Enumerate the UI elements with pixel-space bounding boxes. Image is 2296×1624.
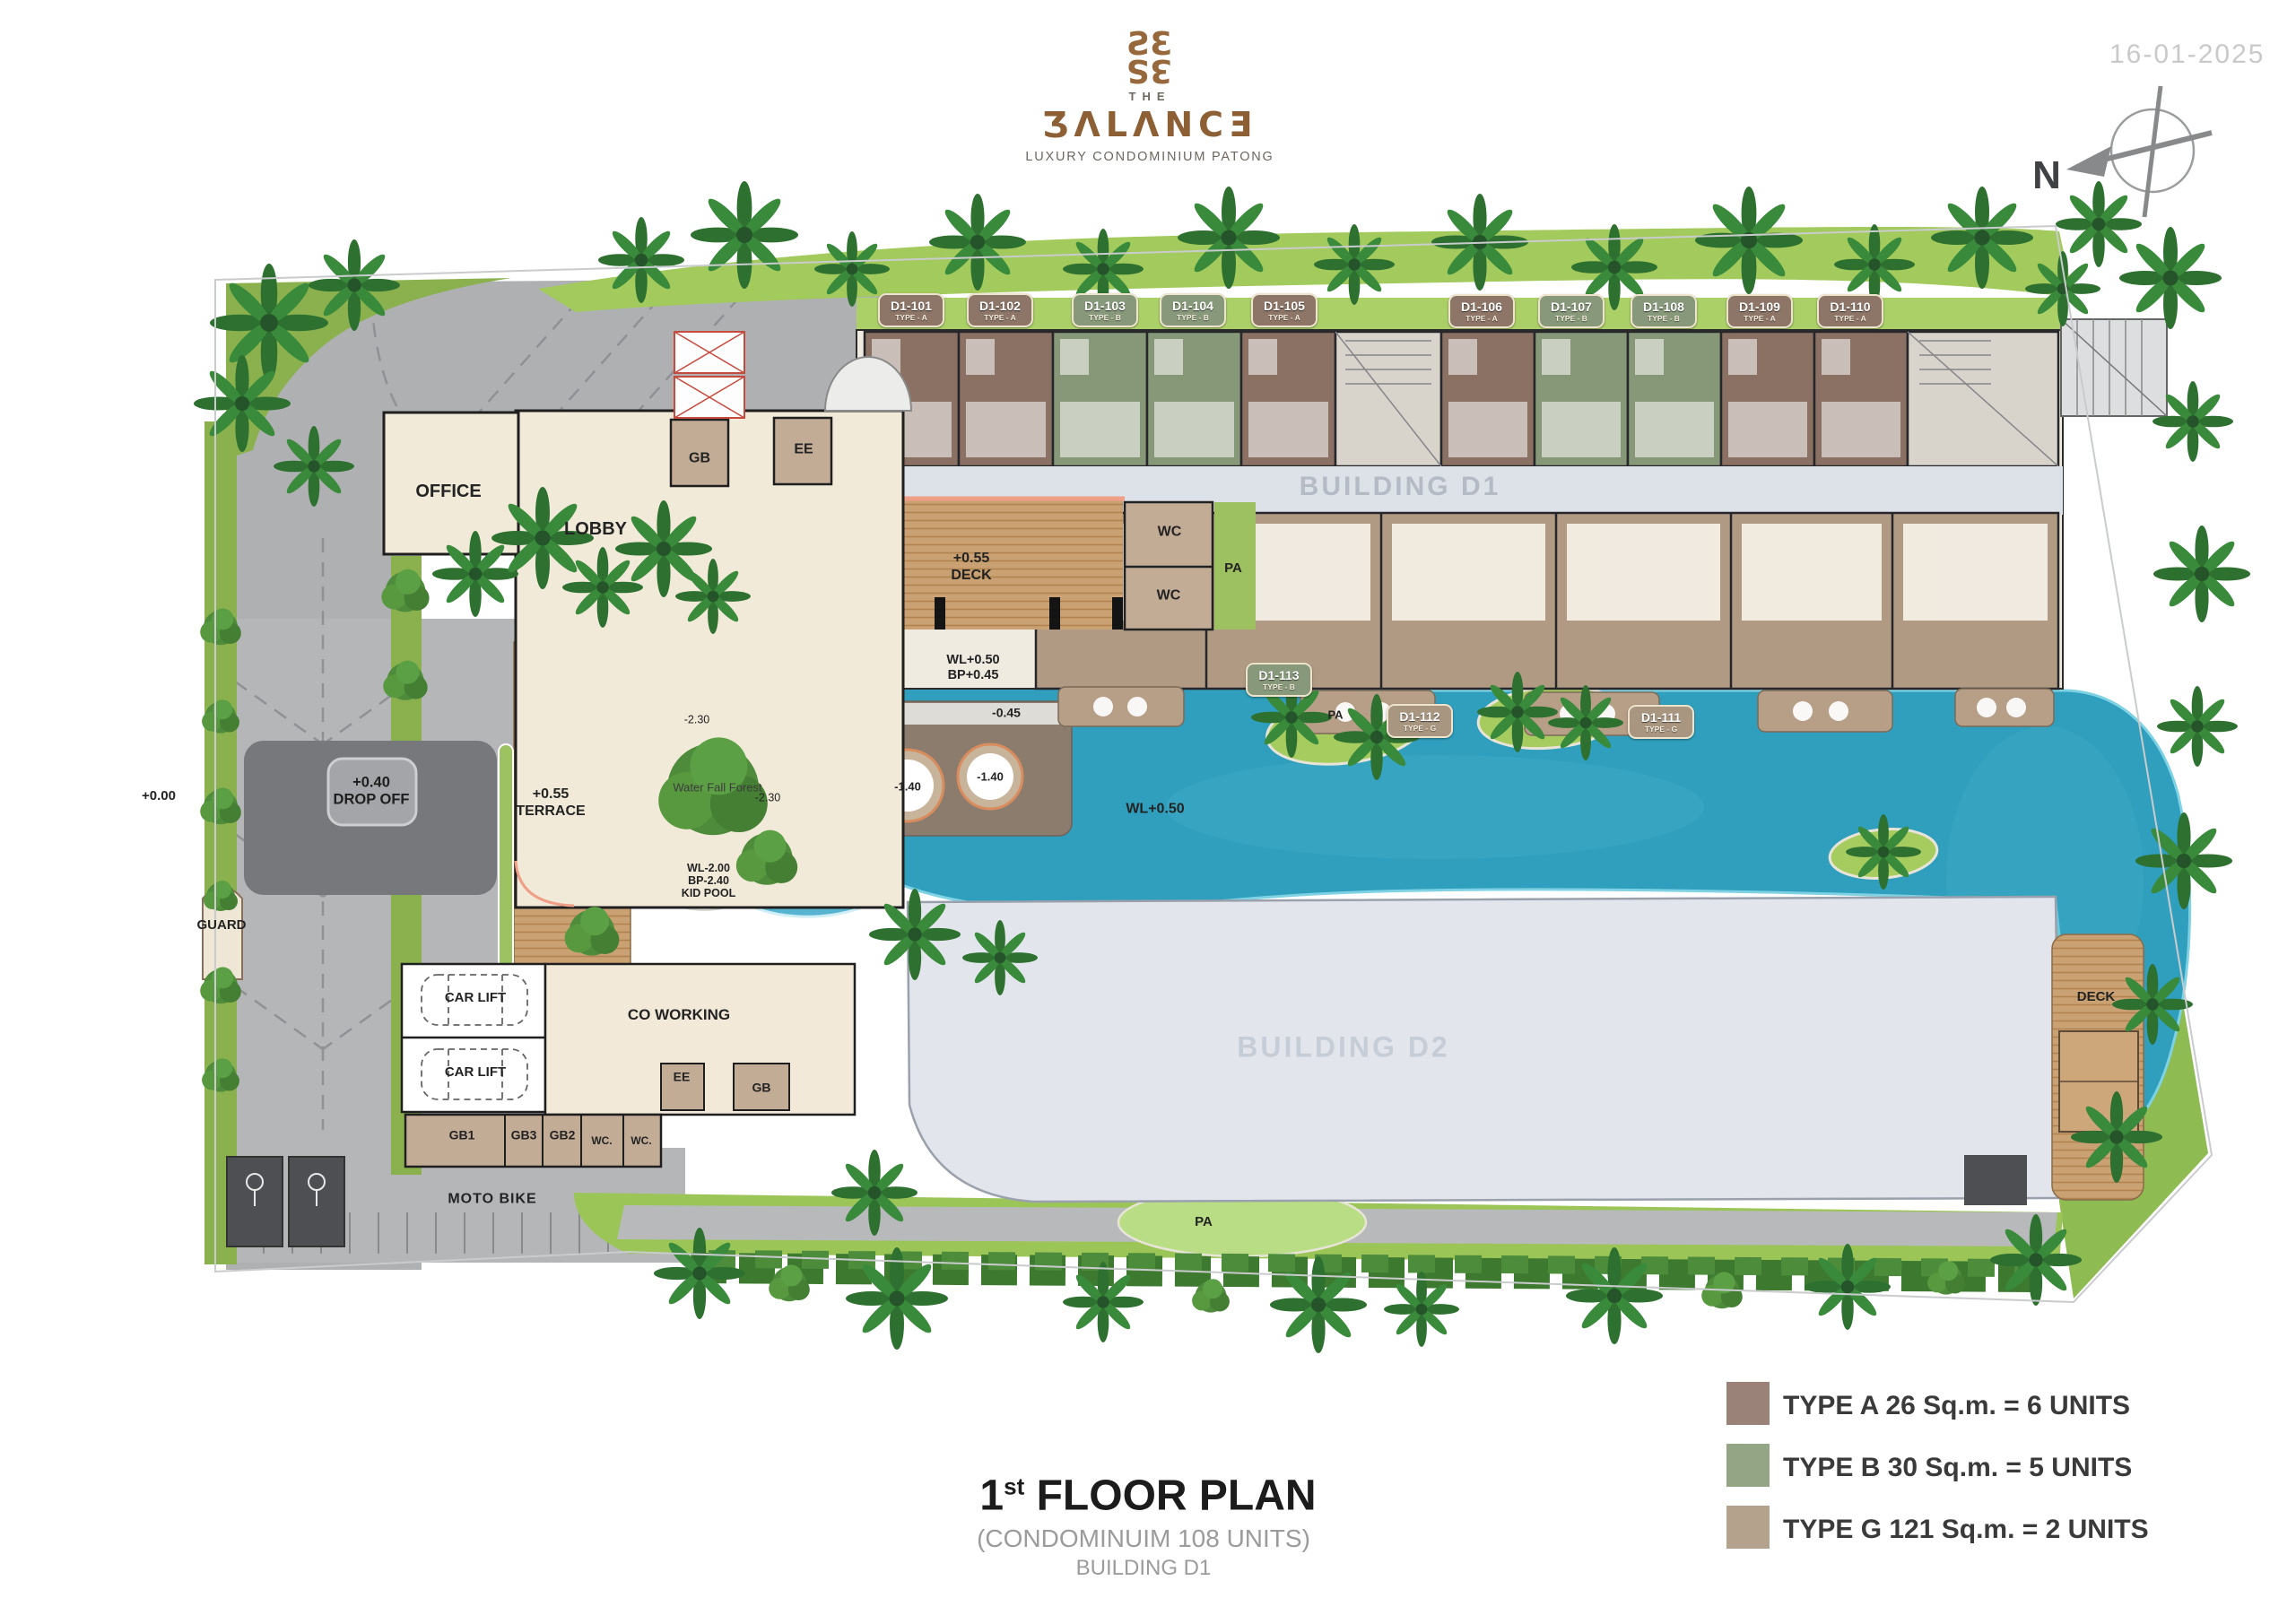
monogram-bottom: ƧƐ: [1025, 57, 1274, 83]
unit-pill-d1-106: D1-106TYPE - A: [1448, 294, 1515, 328]
unit-pill-d1-105: D1-105TYPE - A: [1251, 293, 1318, 327]
legend-swatch-type-g: [1726, 1506, 1770, 1549]
unit-pill-d1-102: D1-102TYPE - A: [967, 293, 1033, 327]
guard-label: GUARD: [197, 917, 247, 934]
deck-label: +0.55DECK: [951, 551, 991, 585]
plan-date: 16-01-2025: [2109, 39, 2265, 70]
moto-bike-label: MOTO BIKE: [448, 1192, 536, 1209]
unit-pill-d1-104: D1-104TYPE - B: [1160, 293, 1226, 327]
building-d2: [908, 897, 2060, 1205]
depth-230a-label: -2.30: [684, 714, 710, 727]
unit-pill-d1-107: D1-107TYPE - B: [1538, 294, 1605, 328]
floor-plan-page: ƧƐ ƧƐ THE ƷΛLΛNCƎ LUXURY CONDOMINIUM PAT…: [0, 0, 2296, 1624]
balance-monogram-icon: ƧƐ ƧƐ: [1025, 32, 1274, 83]
logo-tagline: LUXURY CONDOMINIUM PATONG: [1025, 150, 1274, 164]
unit-pill-d1-113: D1-113TYPE - B: [1246, 663, 1312, 697]
car-lift-1-label: CAR LIFT: [445, 990, 506, 1006]
compass-north-label: N: [2032, 153, 2061, 198]
office-label: OFFICE: [415, 482, 481, 503]
deck-right-label: DECK: [2077, 989, 2116, 1005]
logo-the: THE: [1025, 90, 1274, 103]
unit-pill-d1-109: D1-109TYPE - A: [1726, 294, 1793, 328]
page-subtitle: (CONDOMINUIM 108 UNITS): [977, 1524, 1310, 1553]
unit-pill-d1-111: D1-111TYPE - G: [1628, 705, 1694, 739]
unit-pill-d1-101: D1-101TYPE - A: [878, 293, 944, 327]
depth-045-label: -0.45: [992, 706, 1021, 721]
car-lift-2-label: CAR LIFT: [445, 1064, 506, 1081]
logo-name: ƷΛLΛNCƎ: [1025, 105, 1274, 144]
ee-top-label: EE: [794, 442, 813, 459]
unit-pill-d1-110: D1-110TYPE - A: [1817, 294, 1883, 328]
legend-label-type-a: TYPE A 26 Sq.m. = 6 UNITS: [1783, 1391, 2130, 1421]
wc-low-1-label: WC.: [591, 1134, 612, 1147]
compass-icon: [2066, 86, 2212, 217]
depth-230b-label: -2.30: [755, 792, 781, 805]
brand-logo: ƧƐ ƧƐ THE ƷΛLΛNCƎ LUXURY CONDOMINIUM PAT…: [1025, 32, 1274, 164]
legend-swatch-type-b: [1726, 1444, 1770, 1487]
coworking-label: CO WORKING: [628, 1006, 730, 1024]
building-d1-label: BUILDING D1: [1300, 472, 1501, 502]
pa-island-label: PA: [1327, 708, 1343, 721]
drop-off-label: +0.40DROP OFF: [334, 775, 410, 810]
gb-lower-label: GB: [752, 1081, 771, 1096]
page-title: 1st FLOOR PLAN: [979, 1472, 1316, 1521]
spa-a-label: -1.40: [894, 779, 921, 793]
page-building-label: BUILDING D1: [1076, 1556, 1212, 1581]
legend-swatch-type-a: [1726, 1382, 1770, 1425]
car-lift-block: [402, 964, 545, 1112]
gb3-label: GB3: [511, 1128, 537, 1143]
ee-lower-label: EE: [674, 1070, 691, 1085]
gb-top-label: GB: [689, 451, 710, 468]
unit-pill-d1-103: D1-103TYPE - B: [1072, 293, 1138, 327]
wc-mid-label: WC: [1157, 588, 1181, 605]
pool-deck: [854, 499, 1256, 630]
road-level-label: +0.00: [142, 788, 176, 804]
waterfall-label: Water Fall Forest: [673, 780, 761, 794]
wc-top-label: WC: [1158, 525, 1182, 542]
kid-pool-label: WL-2.00BP-2.40KID POOL: [682, 862, 735, 899]
legend-label-type-b: TYPE B 30 Sq.m. = 5 UNITS: [1783, 1453, 2132, 1483]
gb2-label: GB2: [550, 1128, 576, 1143]
pa-lawn-label: PA: [1195, 1214, 1213, 1230]
unit-pill-d1-112: D1-112TYPE - G: [1387, 704, 1453, 738]
spa-b-label: -1.40: [977, 769, 1004, 783]
wc-low-2-label: WC.: [631, 1134, 651, 1147]
pool-level-label: WL+0.50BP+0.45: [946, 653, 999, 683]
drop-off: [244, 741, 497, 895]
right-stair: [2061, 319, 2167, 416]
legend-label-type-g: TYPE G 121 Sq.m. = 2 UNITS: [1783, 1515, 2149, 1545]
pa-deck-label: PA: [1224, 560, 1242, 577]
gb1-label: GB1: [449, 1128, 475, 1143]
building-d2-label: BUILDING D2: [1237, 1031, 1449, 1064]
lobby-label: LOBBY: [564, 519, 627, 541]
main-pool-level-label: WL+0.50: [1126, 802, 1184, 819]
terrace-label: +0.55TERRACE: [516, 786, 585, 821]
unit-pill-d1-108: D1-108TYPE - B: [1631, 294, 1697, 328]
